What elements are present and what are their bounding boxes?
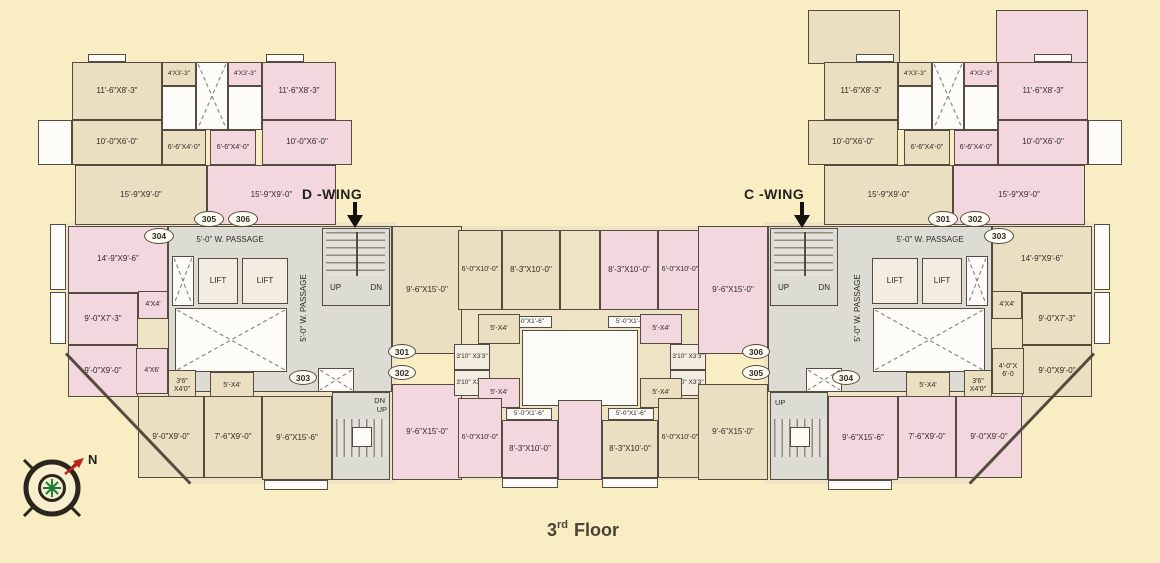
room-dim-label: 10'-0"X6'-0" [832, 138, 874, 147]
c-room-10x6-left: 10'-0"X6'-0" [808, 120, 898, 165]
c-window-top-2 [1034, 54, 1072, 62]
room-dim-label: 3'10" X3'3" [672, 353, 703, 360]
d-passage-vertical-label: 5'-0" W. PASSAGE [297, 248, 309, 368]
passage-label: 5'-0" W. PASSAGE [299, 274, 308, 341]
c-bedroom-top-right: 11'-6"X8'-3" [998, 62, 1088, 120]
c-bedroom-top-left: 11'-6"X8'-3" [824, 62, 898, 120]
c-balcony-top-left: 4'X3'-3" [898, 62, 932, 86]
flat-306-marker: 306 [228, 211, 258, 227]
passage-label: 5'-0" W. PASSAGE [853, 274, 862, 341]
stair-core-shaft [352, 427, 372, 447]
room-dim-label: 5'-X4' [652, 325, 669, 333]
center-balcony-tab-left [502, 478, 558, 488]
c-room-9-6x15-6: 9'-6"X15'-6" [828, 396, 898, 480]
center-room-5x4-tl: 5'-X4' [478, 314, 520, 344]
room-dim-label: 10'-0"X6'-0" [286, 138, 328, 147]
c-wing-entry-arrow-icon [794, 215, 810, 228]
room-dim-label: 9'-0"X9'-0" [152, 433, 189, 442]
d-lift-1: LIFT [198, 258, 238, 304]
room-dim-label: 9'-6"X15'-0" [712, 428, 754, 437]
room-dim-label: 9'-0"X9'-0" [970, 433, 1007, 442]
room-dim-label: 9'-0"X9'-0" [1038, 367, 1075, 376]
room-dim-label: 6'-6"X4'-0" [960, 144, 993, 152]
room-dim-label: 15'-9"X9'-0" [251, 191, 293, 200]
d-wing-label: D -WING [302, 186, 362, 202]
room-dim-label: 5'-X4' [652, 389, 669, 397]
flat-306-marker-c: 306 [742, 344, 770, 359]
c-passage-vertical-label: 5'-0" W. PASSAGE [851, 248, 863, 368]
room-dim-label: 6'-0"X10'-0" [662, 266, 698, 274]
floor-title: 3rdFloor [483, 520, 683, 546]
room-dim-label: 6'-0"X10'-0" [462, 434, 498, 442]
compass-icon [12, 448, 92, 528]
room-dim-label: 4'X3'-3" [234, 70, 256, 77]
room-dim-label: 6'-6"X4'-0" [168, 144, 201, 152]
room-dim-label: 8'-3"X10'-0" [608, 266, 650, 275]
d-room-15-9-left: 15'-9"X9'-0" [75, 165, 207, 225]
room-dim-label: 4'X3'-3" [970, 70, 992, 77]
d-room-9x7-3: 9'-0"X7'-3" [68, 293, 138, 345]
d-bedroom-top-left: 11'-6"X8'-3" [72, 62, 162, 120]
d-room-7-6x9: 7'-6"X9'-0" [204, 396, 262, 478]
center-top-room-3: 8'-3"X10'-0" [600, 230, 658, 310]
c-toilet-top-right [964, 86, 998, 130]
room-dim-label: 9'-0"X7'-3" [1038, 315, 1075, 324]
room-dim-label: 3'6" X4'0" [966, 378, 990, 393]
stair-dn-label: DN [818, 284, 830, 293]
flat-305-marker: 305 [194, 211, 224, 227]
d-room-4x4: 4'X4' [138, 291, 168, 319]
d-room-6-6x4-right: 6'-6"X4'-0" [210, 130, 256, 165]
room-dim-label: 9'-6"X15'-0" [406, 286, 448, 295]
room-dim-label: 9'-6"X15'-6" [276, 434, 318, 443]
c-lift-1: LIFT [872, 258, 918, 304]
flat-number: 303 [992, 231, 1006, 241]
center-bottom-room-3: 8'-3"X10'-0" [602, 420, 658, 478]
room-dim-label: 11'-6"X8'-3" [96, 87, 137, 96]
d-balcony-tab-left [38, 120, 72, 165]
room-dim-label: 3'10" X3'3" [456, 353, 487, 360]
room-dim-label: 14'-9"X9'-6" [1021, 255, 1063, 264]
c-core-duct-shaft [966, 256, 988, 306]
d-top-duct-shaft [196, 62, 228, 130]
room-dim-label: 7'-6"X9'-0" [214, 433, 251, 442]
center-room-5x4-tr: 5'-X4' [640, 314, 682, 344]
c-balcony-tab-right [1088, 120, 1122, 165]
flat-number: 303 [296, 373, 310, 383]
flat-number: 302 [968, 214, 982, 224]
room-dim-label: 6'-0"X10'-0" [662, 434, 698, 442]
compass-north-label: N [88, 452, 97, 467]
north-letter: N [88, 452, 97, 467]
floor-ordinal: rd [557, 520, 568, 531]
lift-label: LIFT [210, 277, 226, 286]
room-dim-label: 5'-X4' [919, 382, 936, 390]
room-dim-label: 8'-3"X10'-0" [509, 445, 551, 454]
room-dim-label: 15'-9"X9'-0" [120, 191, 162, 200]
stair-up-label: UP [778, 284, 789, 293]
room-dim-label: 4'X4' [999, 301, 1014, 309]
c-balcony-top-right: 4'X3'-3" [964, 62, 998, 86]
d-stairwell-top: UP DN [322, 228, 390, 306]
c-top-duct-shaft [932, 62, 964, 130]
room-dim-label: 11'-6"X8'-3" [840, 87, 881, 96]
d-core-void [175, 308, 287, 372]
center-bottom-corridor [558, 400, 602, 480]
d-balcony-top-left: 4'X3'-3" [162, 62, 196, 86]
d-balcony-top-right: 4'X3'-3" [228, 62, 262, 86]
c-stairwell-bottom: UP [770, 392, 828, 480]
room-dim-label: 4'X3'-3" [904, 70, 926, 77]
c-room-6-6x4-right: 6'-6"X4'-0" [954, 130, 998, 165]
flat-number: 301 [395, 347, 409, 357]
stair-dn-label: DN [374, 397, 385, 405]
c-room-7-6x9: 7'-6"X9'-0" [898, 396, 956, 478]
center-top-corridor [560, 230, 600, 310]
lift-label: LIFT [257, 277, 273, 286]
room-dim-label: 5'-0"X1'-6" [616, 410, 646, 417]
flat-305-marker-c: 305 [742, 365, 770, 380]
room-dim-label: 5'-X4' [223, 382, 240, 390]
room-dim-label: 4'X4' [145, 301, 160, 309]
room-dim-label: 9'-6"X15'-0" [712, 286, 754, 295]
room-dim-label: 8'-3"X10'-0" [609, 445, 651, 454]
center-void [522, 330, 638, 406]
d-window-top-2 [266, 54, 304, 62]
c-passage-horizontal-label: 5'-0" W. PASSAGE [872, 232, 988, 246]
room-dim-label: 4'X6' [144, 367, 159, 375]
center-bottom-room-2: 8'-3"X10'-0" [502, 420, 558, 478]
room-dim-label: 4'X3'-3" [168, 70, 190, 77]
c-stairwell-top: UP DN [770, 228, 838, 306]
c-room-9x7-3: 9'-0"X7'-3" [1022, 293, 1092, 345]
c-room-10x6-right: 10'-0"X6'-0" [998, 120, 1088, 165]
c-balcony-tab-bottom [828, 480, 892, 490]
d-balcony-tab-bottom [264, 480, 328, 490]
flat-number: 304 [839, 373, 853, 383]
c-window-top-1 [856, 54, 894, 62]
flat-number: 302 [395, 368, 409, 378]
wing-name: D -WING [302, 186, 362, 202]
c-room-4x4: 4'X4' [992, 291, 1022, 319]
room-dim-label: 9'-0"X7'-3" [84, 315, 121, 324]
c-window-right-2 [1094, 292, 1110, 344]
center-ledge-bottom-left: 5'-0"X1'-6" [506, 408, 552, 420]
center-balcony-tab-right [602, 478, 658, 488]
flat-number: 305 [749, 368, 763, 378]
flat-304-marker-c: 304 [832, 370, 860, 385]
room-dim-label: 14'-9"X9'-6" [97, 255, 139, 264]
passage-label: 5'-0" W. PASSAGE [896, 235, 963, 244]
c-room-9-6x15-top: 9'-6"X15'-0" [698, 226, 768, 354]
center-top-room-4: 6'-0"X10'-0" [658, 230, 702, 310]
d-window-left-2 [50, 292, 66, 344]
room-dim-label: 15'-9"X9'-0" [868, 191, 910, 200]
flat-number: 306 [749, 347, 763, 357]
flat-303-marker-c: 303 [984, 228, 1014, 244]
stair-up-label: UP [330, 284, 341, 293]
center-ledge-bottom-right: 5'-0"X1'-6" [608, 408, 654, 420]
room-dim-label: 15'-9"X9'-0" [998, 191, 1040, 200]
d-room-4x6: 4'X6' [136, 348, 168, 394]
d-bedroom-top-right: 11'-6"X8'-3" [262, 62, 336, 120]
c-lift-2: LIFT [922, 258, 962, 304]
room-dim-label: 8'-3"X10'-0" [510, 266, 552, 275]
flat-303-marker: 303 [289, 370, 317, 385]
floor-plan: 11'-6"X8'-3" 4'X3'-3" 4'X3'-3" 11'-6"X8'… [0, 0, 1160, 563]
d-room-9-6x15-top: 9'-6"X15'-0" [392, 226, 462, 354]
room-dim-label: 6'-0"X10'-0" [462, 266, 498, 274]
d-core-duct-shaft [172, 256, 194, 306]
room-dim-label: 9'-6"X15'-6" [842, 434, 884, 443]
flat-302-marker: 302 [388, 365, 416, 380]
flat-number: 301 [936, 214, 950, 224]
room-dim-label: 10'-0"X6'-0" [96, 138, 138, 147]
c-window-right-1 [1094, 224, 1110, 290]
floor-word: Floor [574, 520, 619, 541]
flat-number: 304 [152, 231, 166, 241]
d-wing-entry-arrow-icon [347, 215, 363, 228]
stair-divider [356, 232, 358, 276]
wing-name: C -WING [744, 186, 804, 202]
d-passage-horizontal-label: 5'-0" W. PASSAGE [172, 232, 288, 246]
stair-dn-label: DN [370, 284, 382, 293]
lift-label: LIFT [934, 277, 950, 286]
stair-up-label: UP [377, 406, 387, 414]
stair-up-label: UP [775, 399, 785, 407]
room-dim-label: 7'-6"X9'-0" [908, 433, 945, 442]
floor-number: 3 [547, 520, 557, 541]
room-dim-label: 11'-6"X8'-3" [278, 87, 319, 96]
center-top-room-1: 6'-0"X10'-0" [458, 230, 502, 310]
c-wing-label: C -WING [744, 186, 804, 202]
flat-301-marker: 301 [388, 344, 416, 359]
d-lift-2: LIFT [242, 258, 288, 304]
center-bottom-room-4: 6'-0"X10'-0" [658, 398, 702, 478]
stair-divider [804, 232, 806, 276]
d-room-10x6-left: 10'-0"X6'-0" [72, 120, 162, 165]
d-window-top-1 [88, 54, 126, 62]
c-wing-entry-arrow-stem [800, 202, 804, 216]
room-dim-label: 10'-0"X6'-0" [1022, 138, 1064, 147]
d-room-9-6x15-6: 9'-6"X15'-6" [262, 396, 332, 480]
c-room-9-6x15-bottom: 9'-6"X15'-0" [698, 384, 768, 480]
flat-number: 306 [236, 214, 250, 224]
flat-301-marker-c: 301 [928, 211, 958, 227]
c-toilet-top-left [898, 86, 932, 130]
d-stairwell-bottom: DN UP [332, 392, 390, 480]
d-wing-entry-arrow-stem [353, 202, 357, 216]
room-dim-label: 3'6" X4'0" [170, 378, 194, 393]
flat-302-marker-c: 302 [960, 211, 990, 227]
room-dim-label: 5'-X4' [490, 389, 507, 397]
d-room-10x6-right: 10'-0"X6'-0" [262, 120, 352, 165]
center-bottom-room-1: 6'-0"X10'-0" [458, 398, 502, 478]
room-dim-label: 5'-X4' [490, 325, 507, 333]
d-room-9-6x15-bottom: 9'-6"X15'-0" [392, 384, 462, 480]
flat-304-marker: 304 [144, 228, 174, 244]
room-dim-label: 9'-0"X9'-0" [84, 367, 121, 376]
d-lower-duct-shaft [318, 368, 354, 392]
d-toilet-top-right [228, 86, 262, 130]
passage-label: 5'-0" W. PASSAGE [196, 235, 263, 244]
room-dim-label: 11'-6"X8'-3" [1022, 87, 1063, 96]
c-room-6-6x4-left: 6'-6"X4'-0" [904, 130, 950, 165]
center-room-3-10-l1: 3'10" X3'3" [454, 344, 490, 370]
lift-label: LIFT [887, 277, 903, 286]
d-room-6-6x4-left: 6'-6"X4'-0" [162, 130, 206, 165]
c-core-void [873, 308, 985, 372]
room-dim-label: 9'-6"X15'-0" [406, 428, 448, 437]
room-dim-label: 5'-0"X1'-6" [514, 410, 544, 417]
flat-number: 305 [202, 214, 216, 224]
d-toilet-top-left [162, 86, 196, 130]
room-dim-label: 6'-6"X4'-0" [217, 144, 250, 152]
d-window-left-1 [50, 224, 66, 290]
room-dim-label: 6'-6"X4'-0" [911, 144, 944, 152]
stair-core-shaft [790, 427, 810, 447]
center-top-room-2: 8'-3"X10'-0" [502, 230, 560, 310]
c-room-4x6: 4'-0"X 6'-0 [992, 348, 1024, 394]
room-dim-label: 4'-0"X 6'-0 [994, 363, 1022, 378]
